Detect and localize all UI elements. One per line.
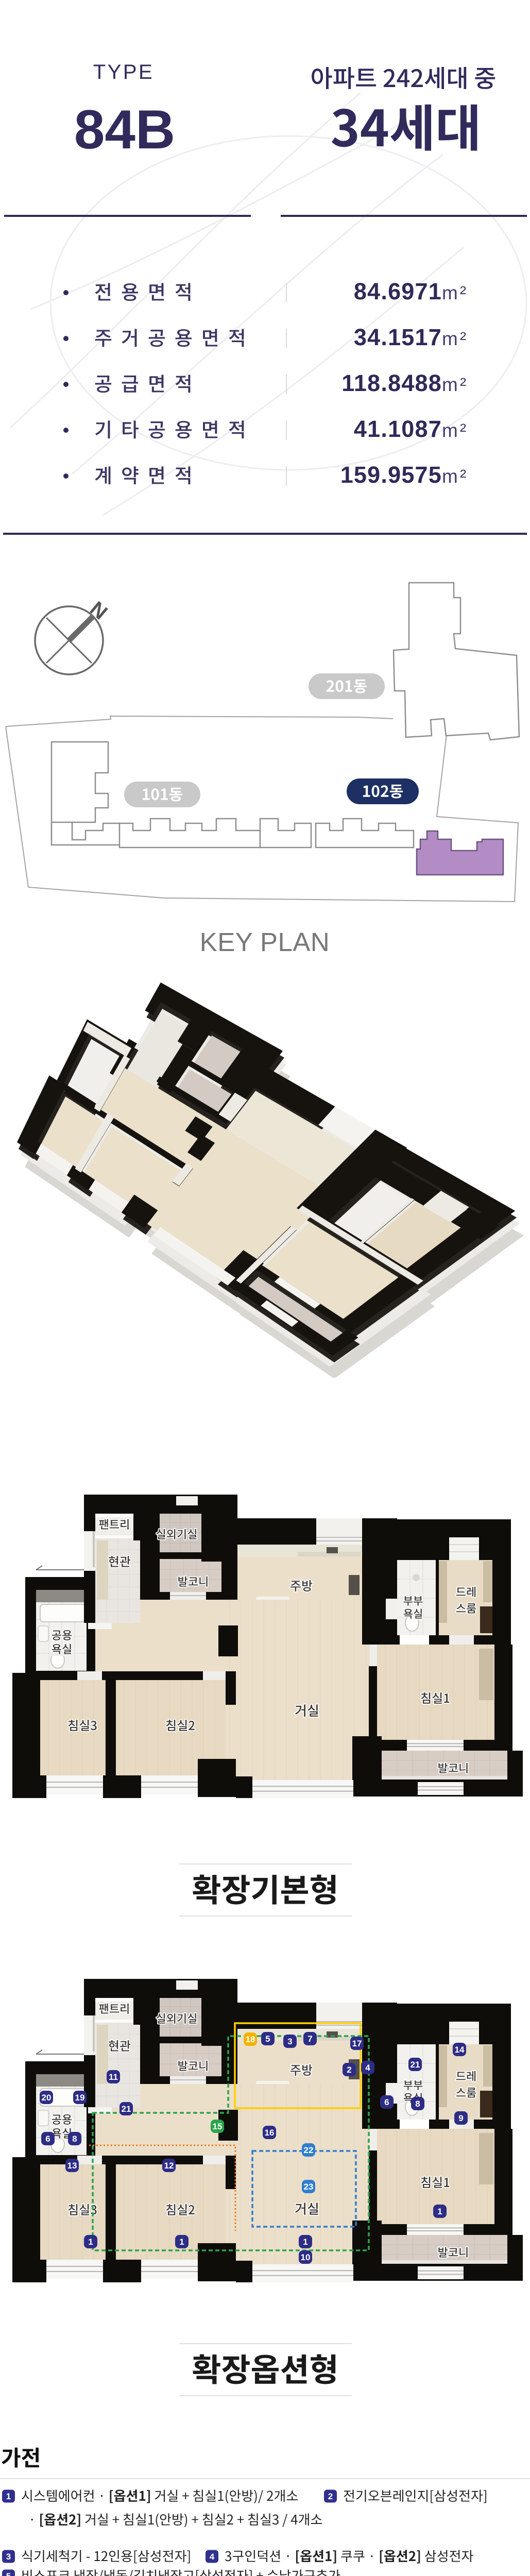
svg-text:2: 2 xyxy=(328,2492,333,2501)
svg-text:m²: m² xyxy=(442,466,468,487)
svg-text:15: 15 xyxy=(213,2122,223,2131)
svg-text:14: 14 xyxy=(455,2045,465,2055)
svg-text:84.6971: 84.6971 xyxy=(354,278,442,304)
svg-text:21: 21 xyxy=(122,2104,131,2114)
svg-text:23: 23 xyxy=(304,2182,314,2192)
svg-text:41.1087: 41.1087 xyxy=(354,416,442,442)
svg-text:4: 4 xyxy=(365,2063,370,2073)
svg-text:m²: m² xyxy=(442,374,468,395)
svg-text:3: 3 xyxy=(287,2037,292,2046)
svg-text:118.8488: 118.8488 xyxy=(341,370,442,396)
svg-text:1: 1 xyxy=(303,2237,307,2247)
svg-text:m²: m² xyxy=(442,282,468,303)
svg-text:8: 8 xyxy=(415,2099,420,2109)
svg-text:13: 13 xyxy=(67,2161,77,2171)
svg-text:20: 20 xyxy=(42,2093,52,2103)
svg-text:5: 5 xyxy=(265,2034,270,2044)
svg-text:8: 8 xyxy=(72,2134,77,2144)
svg-text:1: 1 xyxy=(88,2237,93,2247)
svg-text:m²: m² xyxy=(442,328,468,349)
svg-text:3: 3 xyxy=(6,2552,11,2562)
svg-text:TYPE: TYPE xyxy=(93,61,154,83)
svg-text:34.1517: 34.1517 xyxy=(354,324,442,350)
svg-text:84B: 84B xyxy=(74,98,175,160)
svg-text:6: 6 xyxy=(384,2097,389,2107)
svg-text:KEY PLAN: KEY PLAN xyxy=(200,927,330,957)
svg-text:1: 1 xyxy=(179,2237,184,2247)
svg-text:2: 2 xyxy=(347,2065,351,2075)
svg-text:19: 19 xyxy=(75,2093,85,2103)
svg-text:22: 22 xyxy=(304,2145,314,2155)
svg-text:m²: m² xyxy=(442,420,468,441)
svg-text:6: 6 xyxy=(45,2134,50,2144)
svg-text:16: 16 xyxy=(265,2128,275,2138)
svg-text:12: 12 xyxy=(164,2161,174,2171)
svg-text:21: 21 xyxy=(411,2060,420,2070)
svg-text:11: 11 xyxy=(109,2072,118,2082)
svg-text:9: 9 xyxy=(458,2113,463,2123)
svg-text:17: 17 xyxy=(352,2039,362,2048)
svg-text:5: 5 xyxy=(6,2571,11,2576)
svg-text:10: 10 xyxy=(301,2252,311,2262)
svg-text:18: 18 xyxy=(246,2035,255,2044)
svg-text:4: 4 xyxy=(210,2552,215,2562)
svg-text:1: 1 xyxy=(437,2207,442,2216)
svg-text:159.9575: 159.9575 xyxy=(340,462,442,488)
svg-text:1: 1 xyxy=(6,2492,11,2501)
svg-text:7: 7 xyxy=(307,2034,312,2044)
